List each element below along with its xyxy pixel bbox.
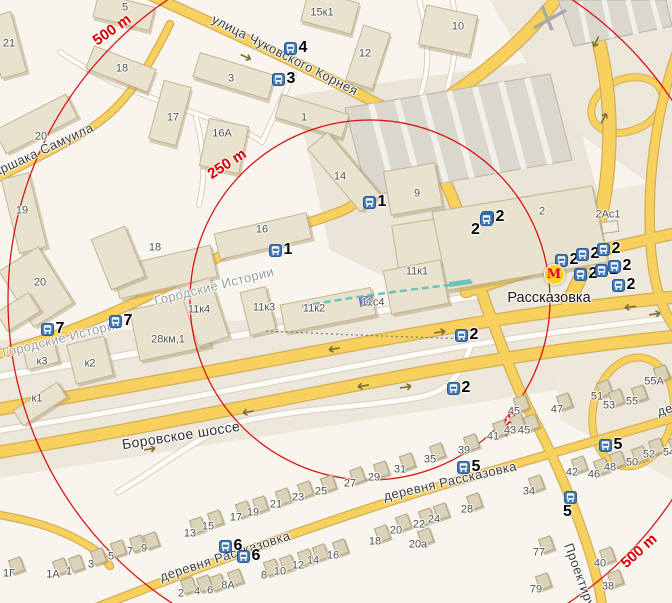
bus-stop-number: 2 — [470, 327, 479, 343]
bus-icon — [576, 248, 589, 261]
house-number-label: 11к4 — [188, 305, 210, 316]
house-number-label: 46 — [588, 470, 600, 481]
bus-stop-number: 4 — [299, 40, 308, 56]
house-number-label: 79 — [530, 585, 542, 596]
house-number-label: 54 — [663, 448, 672, 459]
house-number-label: 3 — [228, 74, 234, 85]
house-number-label: 18 — [369, 537, 381, 548]
bus-icon — [455, 329, 468, 342]
bus-icon — [447, 382, 460, 395]
metro-icon[interactable]: М — [544, 264, 565, 285]
house-number-label: 20а — [409, 540, 427, 551]
bus-icon — [109, 315, 122, 328]
house-number-label: 14 — [307, 556, 319, 567]
house-number-label: 7 — [127, 547, 133, 558]
house-number-label: 3 — [88, 560, 94, 571]
bus-stop-number: 1 — [378, 194, 387, 210]
house-number-label: 2 — [178, 589, 184, 600]
bus-stop-number: 2 — [623, 258, 632, 274]
house-number-label: 6 — [207, 586, 213, 597]
house-number-label: 10 — [274, 567, 286, 578]
bus-icon — [272, 73, 285, 86]
house-number-label: 20 — [34, 278, 46, 289]
house-number-label: 16 — [256, 225, 268, 236]
house-number-label: 12 — [292, 561, 304, 572]
bus-icon — [457, 461, 470, 474]
bus-icon — [269, 244, 282, 257]
house-number-label: 51 — [591, 392, 603, 403]
house-number-label: 20 — [35, 132, 47, 143]
house-number-label: 23 — [292, 493, 304, 504]
bus-stop-number: 2 — [612, 241, 621, 257]
house-number-label: 14 — [334, 172, 346, 183]
bus-stop-number: 5 — [563, 504, 572, 520]
bus-stop-number: 3 — [287, 71, 296, 87]
house-number-label: 48 — [604, 463, 616, 474]
bus-icon — [608, 260, 621, 273]
house-number-label: 16 — [327, 551, 339, 562]
house-number-label: 77 — [533, 548, 545, 559]
house-number-label: 45 — [518, 426, 530, 437]
bus-stop-number: 6 — [252, 548, 261, 564]
house-number-label: 18 — [149, 243, 161, 254]
house-number-label: 47 — [551, 405, 563, 416]
house-number-label: 18 — [116, 64, 128, 75]
house-number-label: 45 — [508, 407, 520, 418]
bus-icon — [612, 279, 625, 292]
house-number-label: к3 — [37, 357, 48, 368]
house-number-label: 5 — [122, 3, 128, 14]
house-number-label: 28 — [461, 505, 473, 516]
house-number-label: 17 — [167, 113, 179, 124]
bus-icon — [599, 439, 612, 452]
house-number-label: 11к1 — [406, 267, 428, 278]
house-number-label: 21 — [270, 500, 282, 511]
house-number-label: 10 — [452, 22, 464, 33]
house-number-label: 20 — [390, 526, 402, 537]
house-number-label: 15 — [202, 522, 214, 533]
bus-icon — [219, 540, 232, 553]
house-number-label: 38 — [602, 582, 614, 593]
house-number-label: 11с4 — [361, 298, 384, 309]
map-labels-layer: 250 m500 m250 m500 mулица Чуковского Кор… — [0, 0, 672, 603]
street-label: улица Чуковского Корнея — [210, 12, 360, 97]
bus-icon — [237, 550, 250, 563]
house-number-label: 27 — [344, 479, 356, 490]
house-number-label: 1 — [66, 567, 72, 578]
house-number-label: 31 — [394, 465, 406, 476]
bus-icon — [574, 268, 587, 281]
house-number-label: 8А — [221, 581, 234, 592]
house-number-label: 29 — [368, 473, 380, 484]
ring-distance-label: 250 m — [205, 146, 249, 182]
house-number-label: 28км,1 — [151, 335, 185, 346]
bus-stop-number: 2 — [627, 277, 636, 293]
house-number-label: 55А — [644, 377, 664, 388]
house-number-label: 34 — [523, 487, 535, 498]
house-number-label: 15к1 — [310, 8, 333, 19]
bus-icon — [480, 213, 493, 226]
street-label: Маршака Самуила — [0, 121, 95, 184]
house-number-label: 19 — [247, 508, 259, 519]
house-number-label: 24 — [428, 515, 440, 526]
bus-stop-number: 5 — [614, 437, 623, 453]
house-number-label: 21 — [3, 39, 15, 50]
house-number-label: 1 — [301, 113, 307, 124]
bus-icon — [363, 196, 376, 209]
bus-stop-number: 2 — [462, 380, 471, 396]
metro-station-name: Рассказовка — [507, 291, 590, 306]
house-number-label: 53 — [603, 401, 615, 412]
house-number-label: к2 — [85, 359, 96, 370]
bus-icon — [595, 264, 608, 277]
bus-icon — [41, 323, 54, 336]
street-label: Боровское шоссе — [121, 419, 241, 452]
bus-icon — [597, 243, 610, 256]
house-number-label: 11к3 — [253, 303, 275, 314]
house-number-label: 2Ас1 — [595, 210, 620, 221]
house-number-label: 13 — [184, 529, 196, 540]
house-number-label: 50 — [626, 458, 638, 469]
bus-stop-number: 2 — [496, 209, 505, 225]
house-number-label: 41 — [487, 432, 499, 443]
house-number-label: 9 — [141, 544, 147, 555]
bus-stop-number: 2 — [471, 222, 480, 238]
house-number-label: 39 — [458, 446, 470, 457]
house-number-label: 52 — [643, 450, 655, 461]
house-number-label: 11к2 — [303, 304, 325, 315]
house-number-label: 1А — [46, 570, 59, 581]
house-number-label: 5 — [108, 552, 114, 563]
house-number-label: 40 — [594, 559, 606, 570]
bus-icon — [284, 42, 297, 55]
ring-distance-label: 500 m — [90, 12, 133, 49]
house-number-label: 55 — [626, 397, 638, 408]
house-number-label: 25 — [315, 487, 327, 498]
house-number-label: 42 — [566, 468, 578, 479]
house-number-label: 43 — [504, 426, 516, 437]
map-canvas[interactable]: 250 m500 m250 m500 mулица Чуковского Кор… — [0, 0, 672, 603]
bus-stop-number: 5 — [472, 459, 481, 475]
house-number-label: 22 — [413, 520, 425, 531]
house-number-label: 1Г — [3, 569, 15, 580]
house-number-label: 8 — [261, 571, 267, 582]
ring-distance-label: 500 m — [618, 531, 660, 571]
house-number-label: 9 — [414, 189, 420, 200]
house-number-label: 17 — [230, 513, 242, 524]
bus-stop-number: 1 — [284, 242, 293, 258]
bus-stop-number: 7 — [56, 321, 65, 337]
house-number-label: 12 — [359, 49, 371, 60]
house-number-label: 4 — [194, 587, 200, 598]
house-number-label: 2 — [539, 207, 545, 218]
bus-stop-number: 7 — [124, 313, 133, 329]
house-number-label: 19 — [16, 206, 28, 217]
house-number-label: к1 — [32, 394, 43, 405]
house-number-label: 16А — [212, 129, 232, 140]
house-number-label: 35 — [424, 455, 436, 466]
